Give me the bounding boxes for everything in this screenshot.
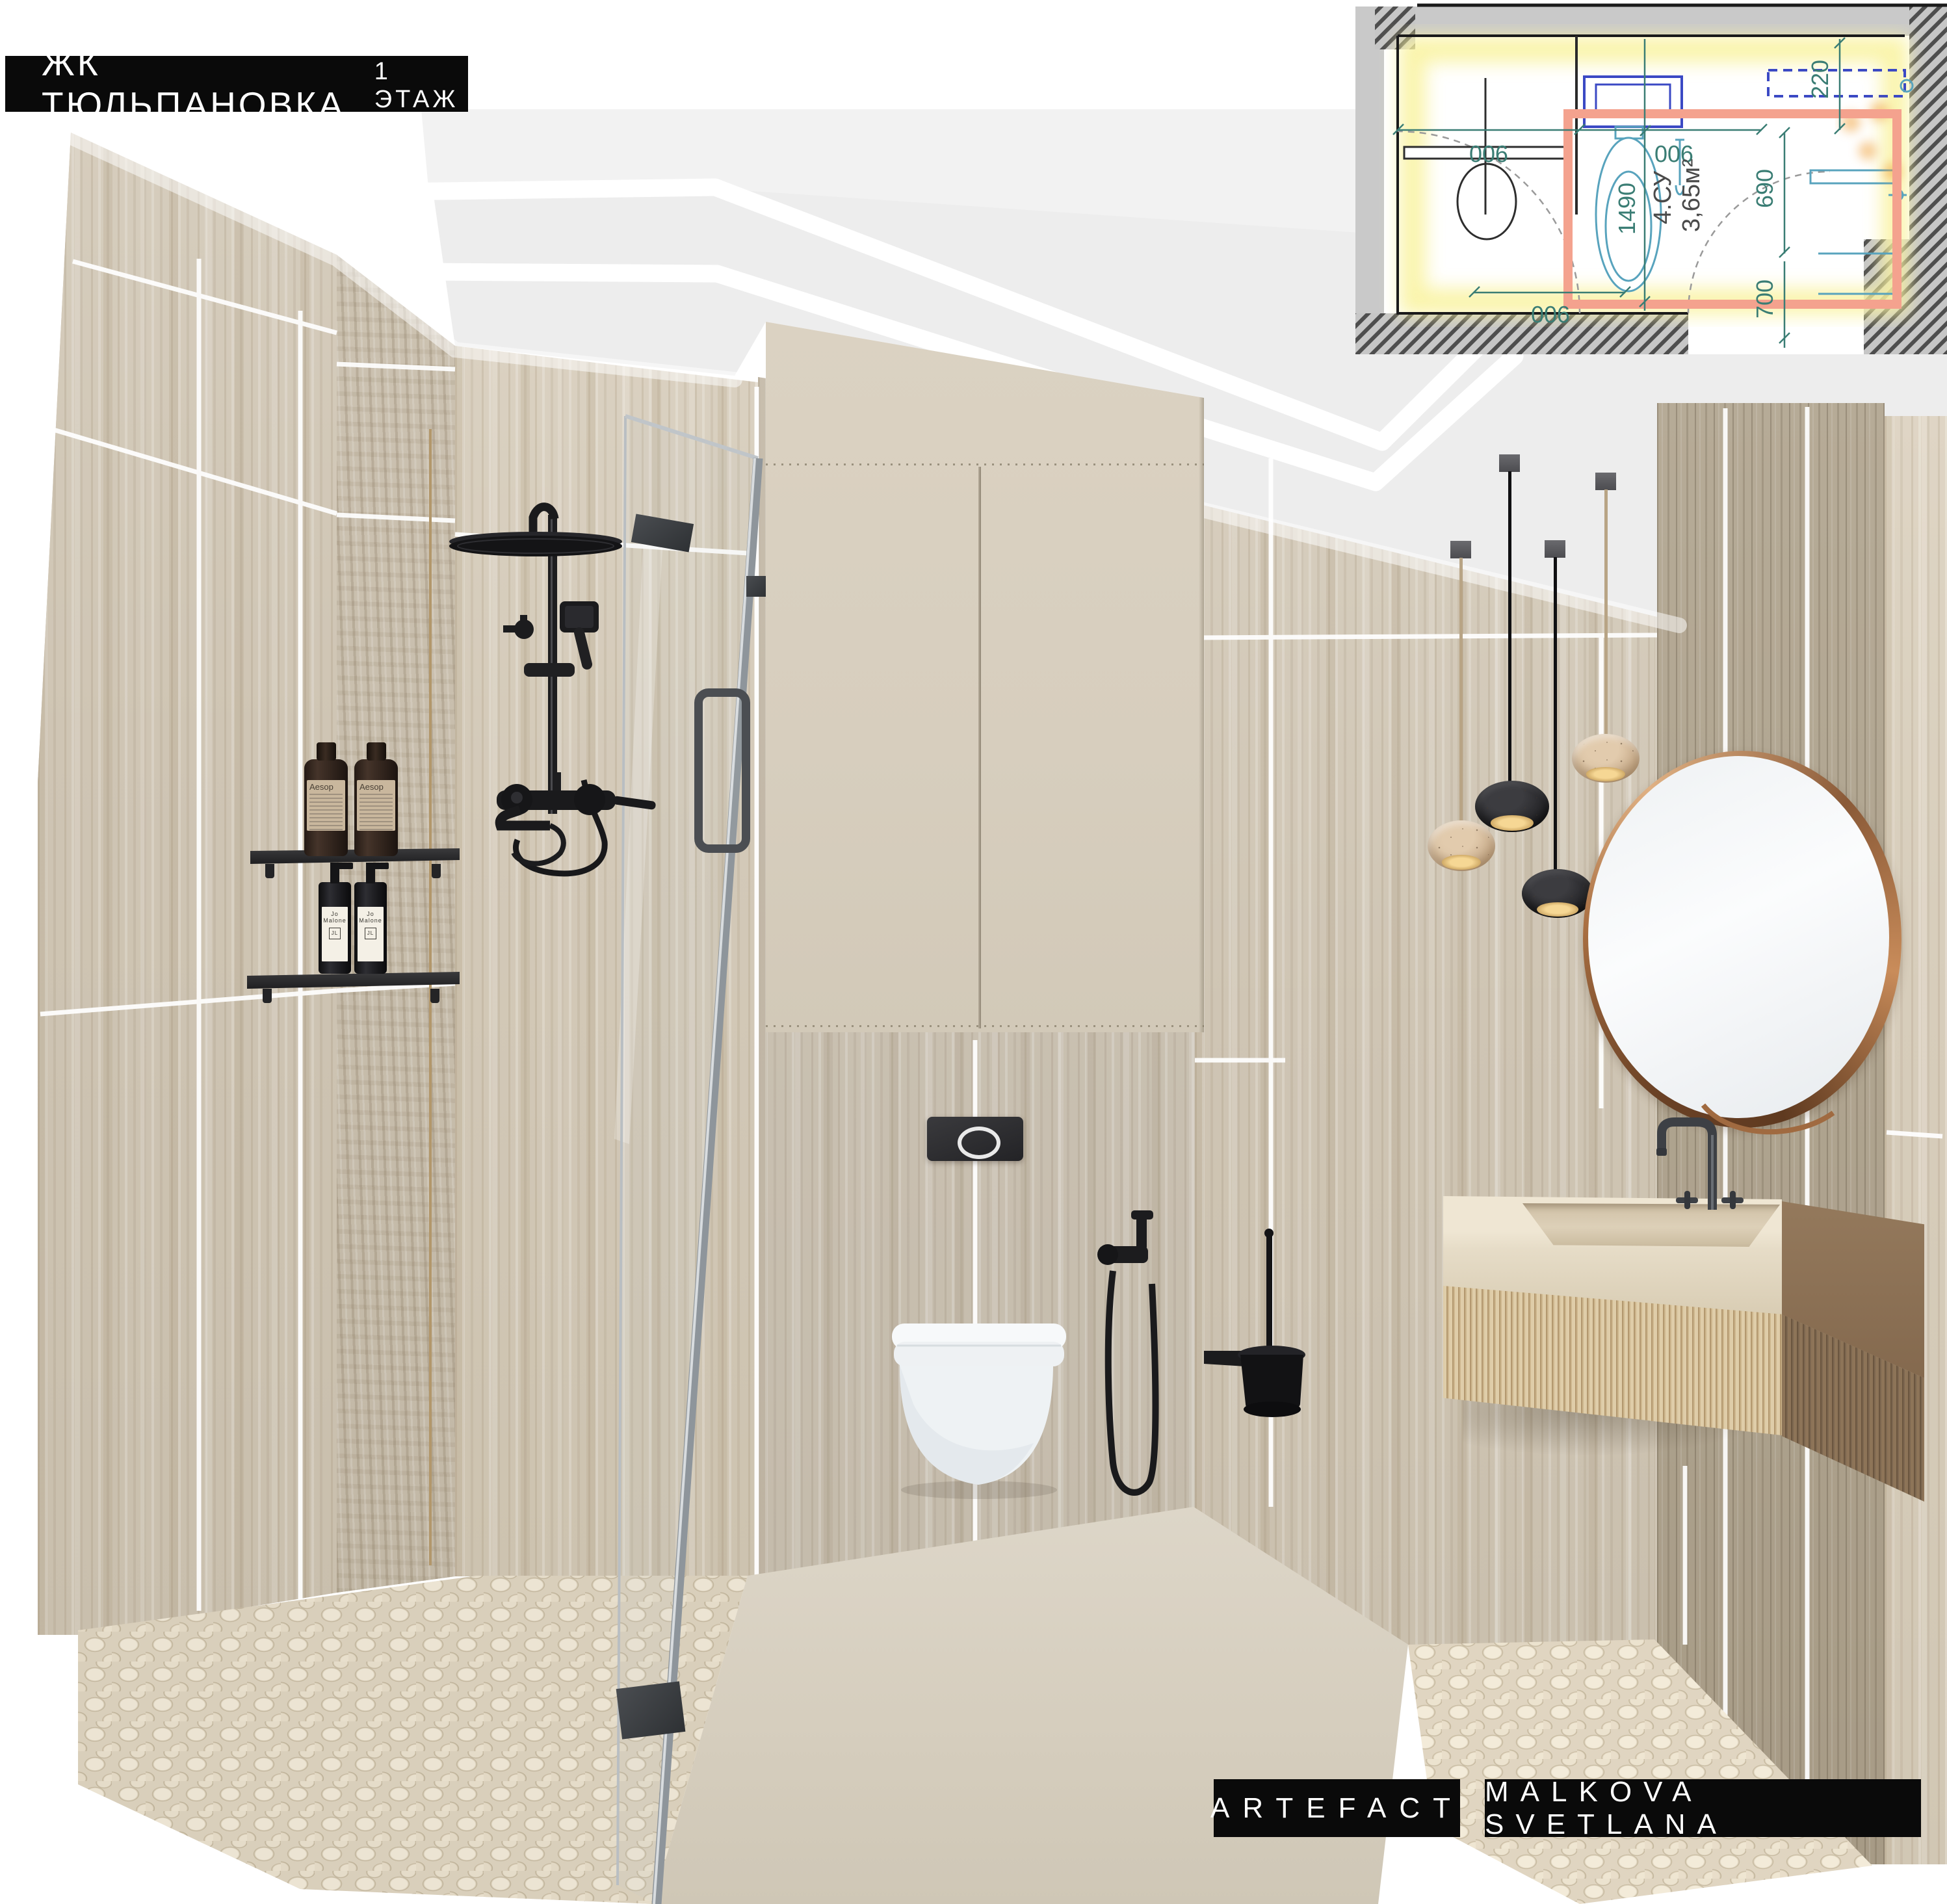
pump-spout <box>331 863 353 869</box>
pendant-glow <box>1537 902 1578 917</box>
shower-mixer <box>455 767 715 930</box>
plan-dim-bottom: 900 <box>1531 301 1570 328</box>
plan-room-area: 3,65м² <box>1678 159 1705 232</box>
pump-spout <box>367 863 389 869</box>
plan-dim-top-left: 900 <box>1469 140 1508 167</box>
pendant-glow <box>1491 815 1534 831</box>
cabinet-seam <box>766 1025 1204 1027</box>
round-mirror <box>1583 751 1901 1128</box>
mixer-lever <box>612 796 656 810</box>
soap-bottle: Jo Malone JL <box>319 882 351 974</box>
designer-name: MALKOVA SVETLANA <box>1485 1776 1921 1841</box>
pendant-glow <box>1442 855 1481 870</box>
cabinet-seam <box>766 463 1204 465</box>
diverter-handle <box>503 615 534 639</box>
design-board: { "header": { "project": "ЖК ТЮЛЬПАНОВКА… <box>0 0 1947 1904</box>
pendant-canopy <box>1595 473 1616 490</box>
slider-clamp <box>524 663 575 677</box>
pendant-rod <box>1459 558 1463 824</box>
sprayer-head <box>1131 1210 1153 1251</box>
shelf-clip <box>430 989 439 1003</box>
designer-badge: MALKOVA SVETLANA <box>1485 1779 1921 1837</box>
plan-dim-mid: 690 <box>1751 169 1778 208</box>
bottle-brand: Aesop <box>309 782 333 792</box>
shelf-clip <box>432 864 441 878</box>
pendant-canopy <box>1450 541 1471 558</box>
bottle-brand: Aesop <box>359 782 384 792</box>
bottle-label: Aesop <box>357 780 395 831</box>
shelf-clip <box>265 864 274 878</box>
cabinet-door-gap <box>978 467 981 1028</box>
toilet-brush <box>1196 1222 1313 1430</box>
basin-faucet <box>1638 1105 1768 1222</box>
pendant-rod <box>1508 471 1511 783</box>
pendant-rod <box>1554 557 1557 870</box>
project-title-badge: ЖК ТЮЛЬПАНОВКА 1 ЭТАЖ <box>5 56 468 112</box>
shelf-clip <box>263 989 272 1003</box>
studio-name: ARTEFACT <box>1210 1792 1463 1825</box>
bottle-brand: Jo Malone <box>323 911 346 924</box>
faucet-handle-right <box>1721 1191 1744 1209</box>
hand-shower <box>560 601 599 664</box>
bottle-cap <box>367 742 386 761</box>
wall-hung-toilet <box>878 1313 1086 1502</box>
plan-hatched-wall <box>1355 313 1688 354</box>
pendant-stone-shade <box>1428 820 1495 871</box>
label-emblem: JL <box>365 928 376 939</box>
bottle-label: Aesop <box>307 780 345 831</box>
pendant-canopy <box>1545 540 1565 558</box>
bottle-label: Jo Malone JL <box>322 907 348 961</box>
flush-button <box>958 1127 1000 1159</box>
pendant-stone-shade <box>1572 734 1640 783</box>
toner-bottle: Aesop <box>354 759 398 856</box>
plan-dim-height: 1490 <box>1614 183 1640 235</box>
project-floor: 1 ЭТАЖ <box>374 54 468 114</box>
pendant-black-shade <box>1475 781 1549 832</box>
label-text-lines <box>309 794 343 830</box>
plan-dim-right-top: 220 <box>1807 60 1833 99</box>
label-text-lines <box>359 794 393 830</box>
glass-bottom-bracket <box>616 1681 686 1739</box>
hygienic-sprayer <box>1079 1203 1183 1508</box>
flush-plate <box>927 1117 1023 1161</box>
bottle-brand: Jo Malone <box>359 911 382 924</box>
plan-room-name: 4.СУ <box>1649 170 1677 224</box>
sprayer-hose <box>1108 1271 1156 1493</box>
studio-badge: ARTEFACT <box>1214 1779 1460 1837</box>
bottle-cap <box>317 742 336 761</box>
cabinet-edge-shade <box>1199 393 1204 1032</box>
pendant-black-shade <box>1522 869 1593 918</box>
faucet-handle-left <box>1676 1191 1698 1209</box>
project-name: ЖК ТЮЛЬПАНОВКА <box>42 42 358 125</box>
toner-bottle: Aesop <box>304 759 348 856</box>
mirror-face <box>1588 756 1889 1118</box>
pendant-rod <box>1604 489 1608 737</box>
pendant-canopy <box>1499 454 1520 472</box>
label-emblem: JL <box>329 928 341 939</box>
pendant-glow <box>1586 767 1625 782</box>
plan-dim-bottom-right: 700 <box>1751 280 1778 319</box>
soap-bottle: Jo Malone JL <box>354 882 387 974</box>
plan-hatched-wall <box>1909 7 1947 239</box>
tall-cabinet <box>766 322 1204 1032</box>
floor-plan: 900 900 1490 690 700 220 900 4.СУ 3,65м² <box>1355 0 1947 354</box>
bottle-label: Jo Malone JL <box>358 907 384 961</box>
